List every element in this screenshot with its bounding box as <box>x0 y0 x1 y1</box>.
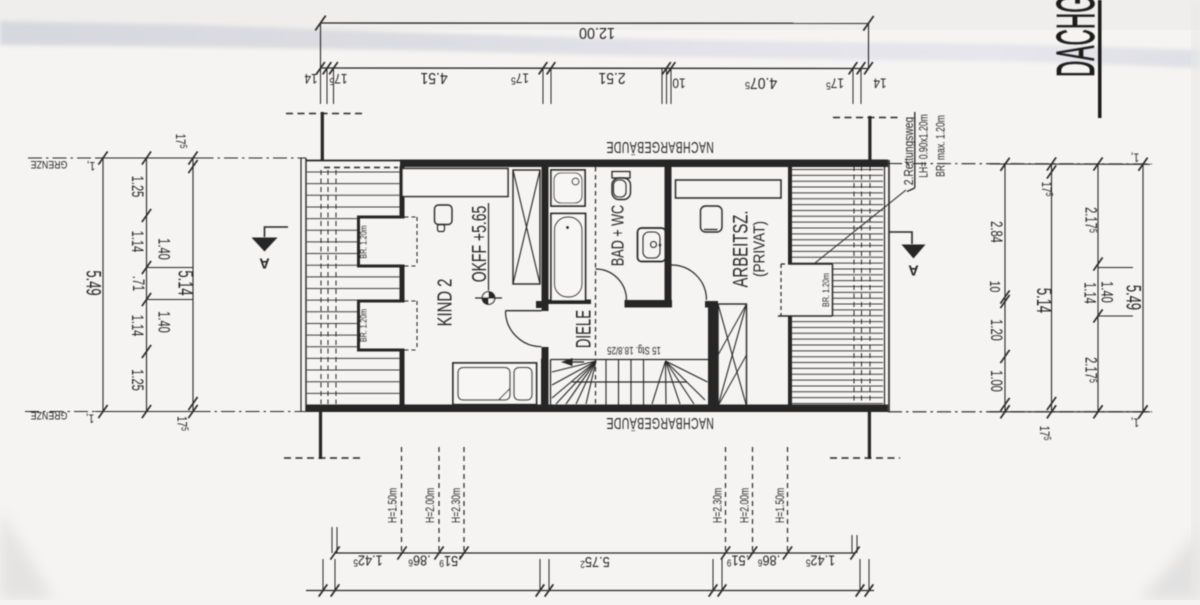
svg-text:14: 14 <box>873 75 886 91</box>
svg-text:5.49: 5.49 <box>82 270 106 295</box>
svg-text:1,: 1, <box>1131 415 1140 428</box>
svg-text:BR. 1.20m: BR. 1.20m <box>359 225 369 258</box>
svg-text:NACHBARGEBÄUDE: NACHBARGEBÄUDE <box>606 414 714 432</box>
svg-text:LH= 0.90x1.20m: LH= 0.90x1.20m <box>918 114 931 178</box>
svg-text:10: 10 <box>672 75 685 91</box>
svg-text:5.14: 5.14 <box>1032 288 1056 314</box>
svg-text:15 Stg. 18.8/25: 15 Stg. 18.8/25 <box>607 344 661 357</box>
svg-text:1.40: 1.40 <box>154 311 173 333</box>
svg-text:1,: 1, <box>87 159 96 172</box>
svg-text:DIELE: DIELE <box>571 310 595 348</box>
svg-text:1.25: 1.25 <box>127 176 146 198</box>
svg-text:1,: 1, <box>1131 150 1140 163</box>
svg-text:12.00: 12.00 <box>579 24 615 42</box>
svg-text:1.00: 1.00 <box>986 370 1005 392</box>
svg-text:DACHGESCHOSS: DACHGESCHOSS <box>1046 0 1106 77</box>
svg-text:NACHBARGEBÄUDE: NACHBARGEBÄUDE <box>606 138 714 156</box>
svg-text:10: 10 <box>987 281 1004 293</box>
svg-text:1.25: 1.25 <box>127 369 146 391</box>
svg-text:2.51: 2.51 <box>598 69 625 86</box>
svg-text:H=1.50m: H=1.50m <box>775 488 788 523</box>
svg-text:OKFF +5.65: OKFF +5.65 <box>467 206 490 283</box>
svg-text:2.84: 2.84 <box>986 221 1005 243</box>
svg-text:5.14: 5.14 <box>174 270 198 296</box>
svg-text:H=2.30m: H=2.30m <box>712 488 725 523</box>
svg-text:H=1.50m: H=1.50m <box>387 488 400 523</box>
svg-text:1,: 1, <box>86 411 95 424</box>
svg-text:BAD + WC: BAD + WC <box>609 205 629 266</box>
svg-text:H=2.00m: H=2.00m <box>425 488 438 523</box>
svg-text:GRENZE: GRENZE <box>30 409 67 421</box>
svg-text:.71: .71 <box>128 276 147 292</box>
svg-text:1.14: 1.14 <box>1080 282 1099 304</box>
svg-text:A: A <box>908 261 919 277</box>
svg-text:H=2.30m: H=2.30m <box>451 488 464 523</box>
svg-text:4.51: 4.51 <box>420 69 447 86</box>
svg-text:BR. 1.20m: BR. 1.20m <box>359 309 369 342</box>
svg-text:BR. max. 1.20m: BR. max. 1.20m <box>935 115 948 177</box>
svg-text:(PRIVAT): (PRIVAT) <box>752 221 769 277</box>
svg-text:1.14: 1.14 <box>127 231 146 253</box>
svg-text:1.40: 1.40 <box>154 238 173 260</box>
svg-text:H=2.00m: H=2.00m <box>739 488 752 523</box>
svg-text:BR. 1.20m: BR. 1.20m <box>821 273 831 307</box>
svg-text:A: A <box>259 254 270 270</box>
svg-text:1.20: 1.20 <box>986 319 1005 341</box>
svg-text:14: 14 <box>304 71 317 87</box>
svg-text:5.49: 5.49 <box>1122 285 1146 310</box>
svg-text:GRENZE: GRENZE <box>30 158 67 170</box>
svg-text:ARBEITSZ.: ARBEITSZ. <box>729 210 752 287</box>
svg-text:KIND 2: KIND 2 <box>433 279 456 327</box>
svg-text:1.40: 1.40 <box>1097 281 1116 303</box>
svg-text:1.14: 1.14 <box>127 315 146 337</box>
